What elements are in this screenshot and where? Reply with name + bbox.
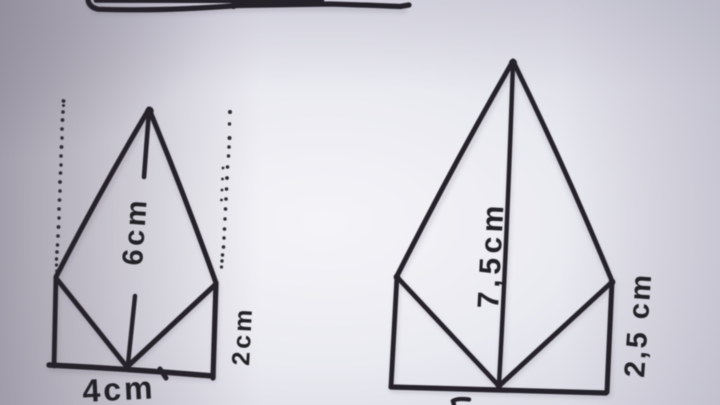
- svg-text:2cm: 2cm: [227, 306, 258, 366]
- svg-text:4cm: 4cm: [81, 369, 156, 405]
- svg-text:7,5cm: 7,5cm: [472, 200, 511, 309]
- svg-text:6cm: 6cm: [117, 196, 154, 267]
